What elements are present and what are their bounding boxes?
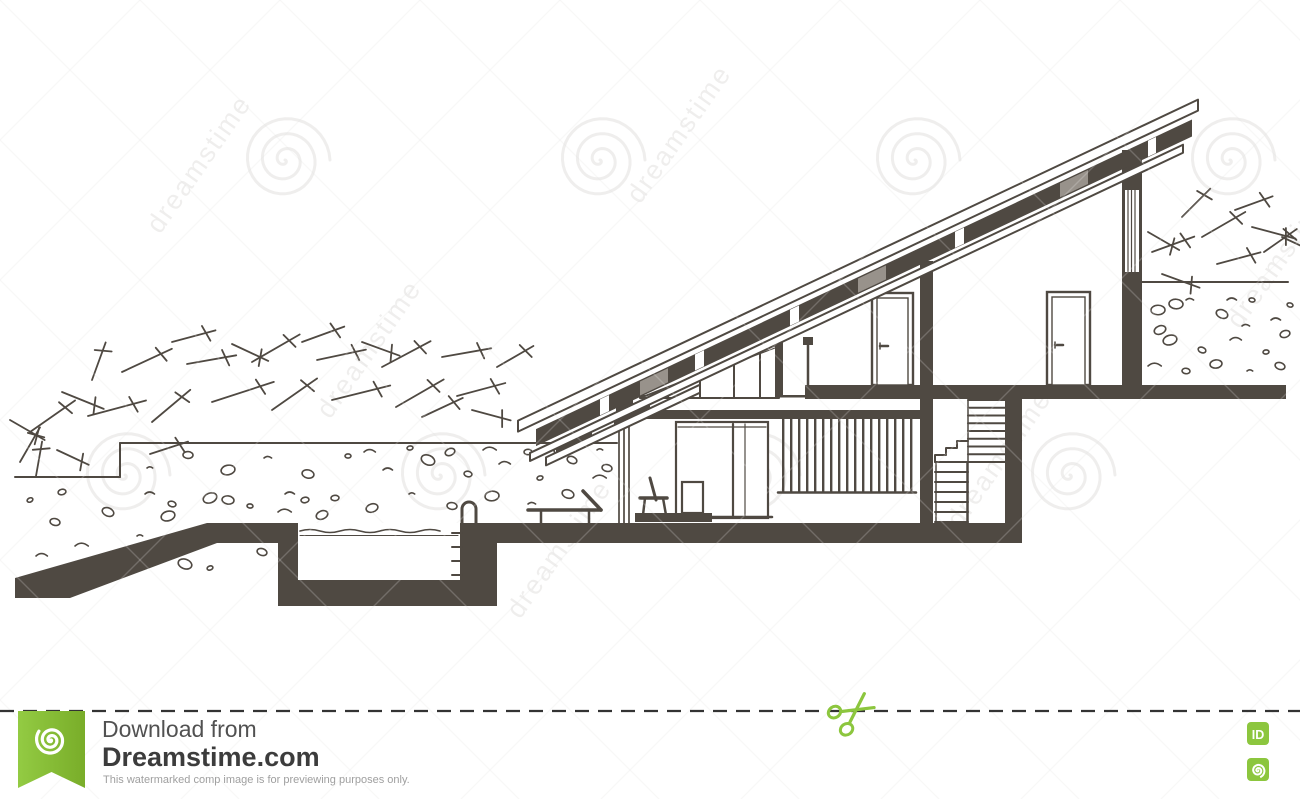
dreamstime-ribbon-logo — [18, 711, 85, 788]
site-name: Dreamstime.com — [102, 742, 320, 772]
svg-text:dreamstime: dreamstime — [620, 59, 737, 208]
svg-text:dreamstime: dreamstime — [500, 474, 617, 623]
svg-text:dreamstime: dreamstime — [310, 274, 427, 423]
download-from-label: Download from — [102, 716, 257, 742]
svg-text:ID: ID — [1252, 728, 1265, 742]
id-badge: ID — [1247, 722, 1269, 745]
stock-image-preview: dreamstimedreamstimedreamstimedreamstime… — [0, 0, 1300, 799]
svg-text:dreamstime: dreamstime — [1220, 184, 1300, 333]
disclaimer-text: This watermarked comp image is for previ… — [103, 774, 410, 786]
copyright-spiral-icon — [1247, 758, 1269, 781]
dreamstime-footer: Download from Dreamstime.com This waterm… — [0, 688, 1300, 788]
svg-text:dreamstime: dreamstime — [140, 89, 257, 238]
architectural-section-drawing: dreamstimedreamstimedreamstimedreamstime… — [0, 0, 1300, 799]
